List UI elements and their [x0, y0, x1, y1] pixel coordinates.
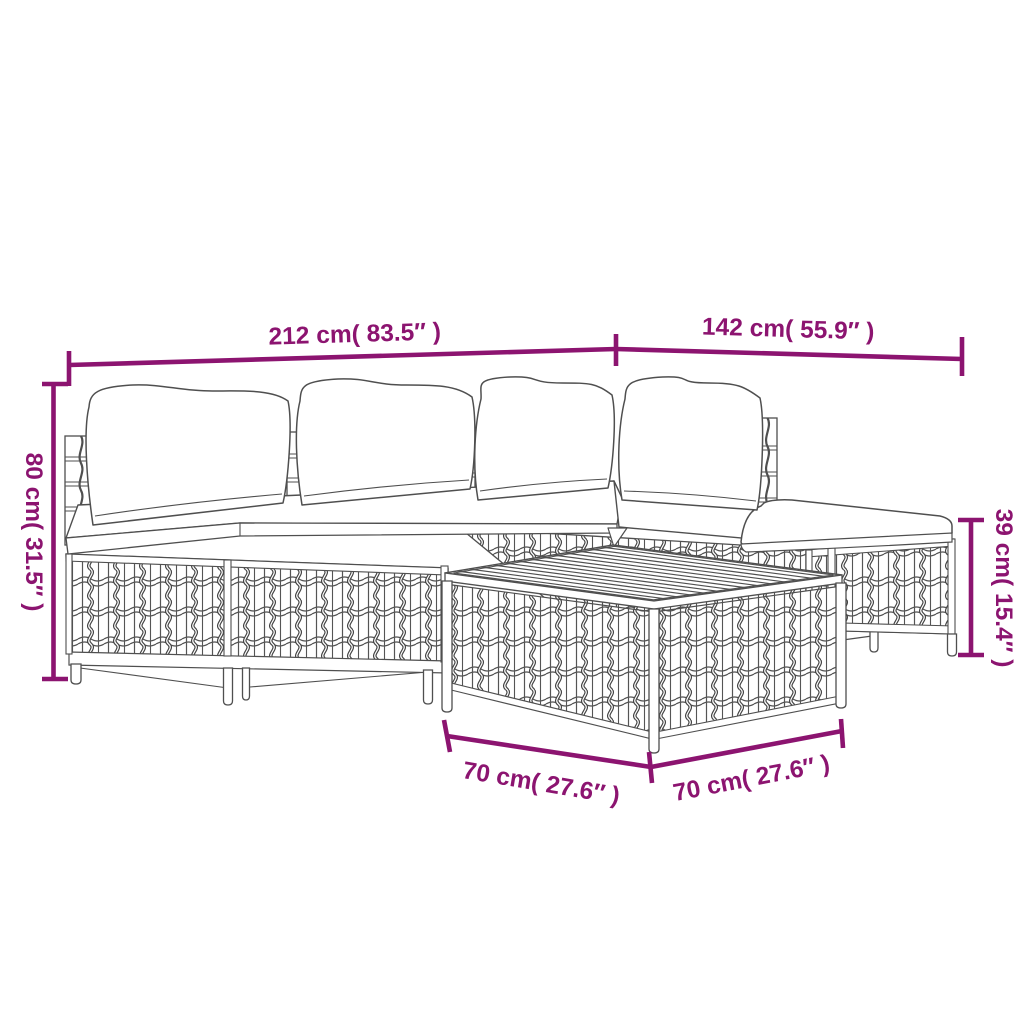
svg-text:142 cm( 55.9″ ): 142 cm( 55.9″ ): [702, 313, 875, 345]
svg-text:39 cm( 15.4″ ): 39 cm( 15.4″ ): [990, 509, 1017, 668]
svg-text:212 cm( 83.5″ ): 212 cm( 83.5″ ): [268, 318, 441, 350]
svg-text:80 cm( 31.5″ ): 80 cm( 31.5″ ): [20, 453, 47, 612]
